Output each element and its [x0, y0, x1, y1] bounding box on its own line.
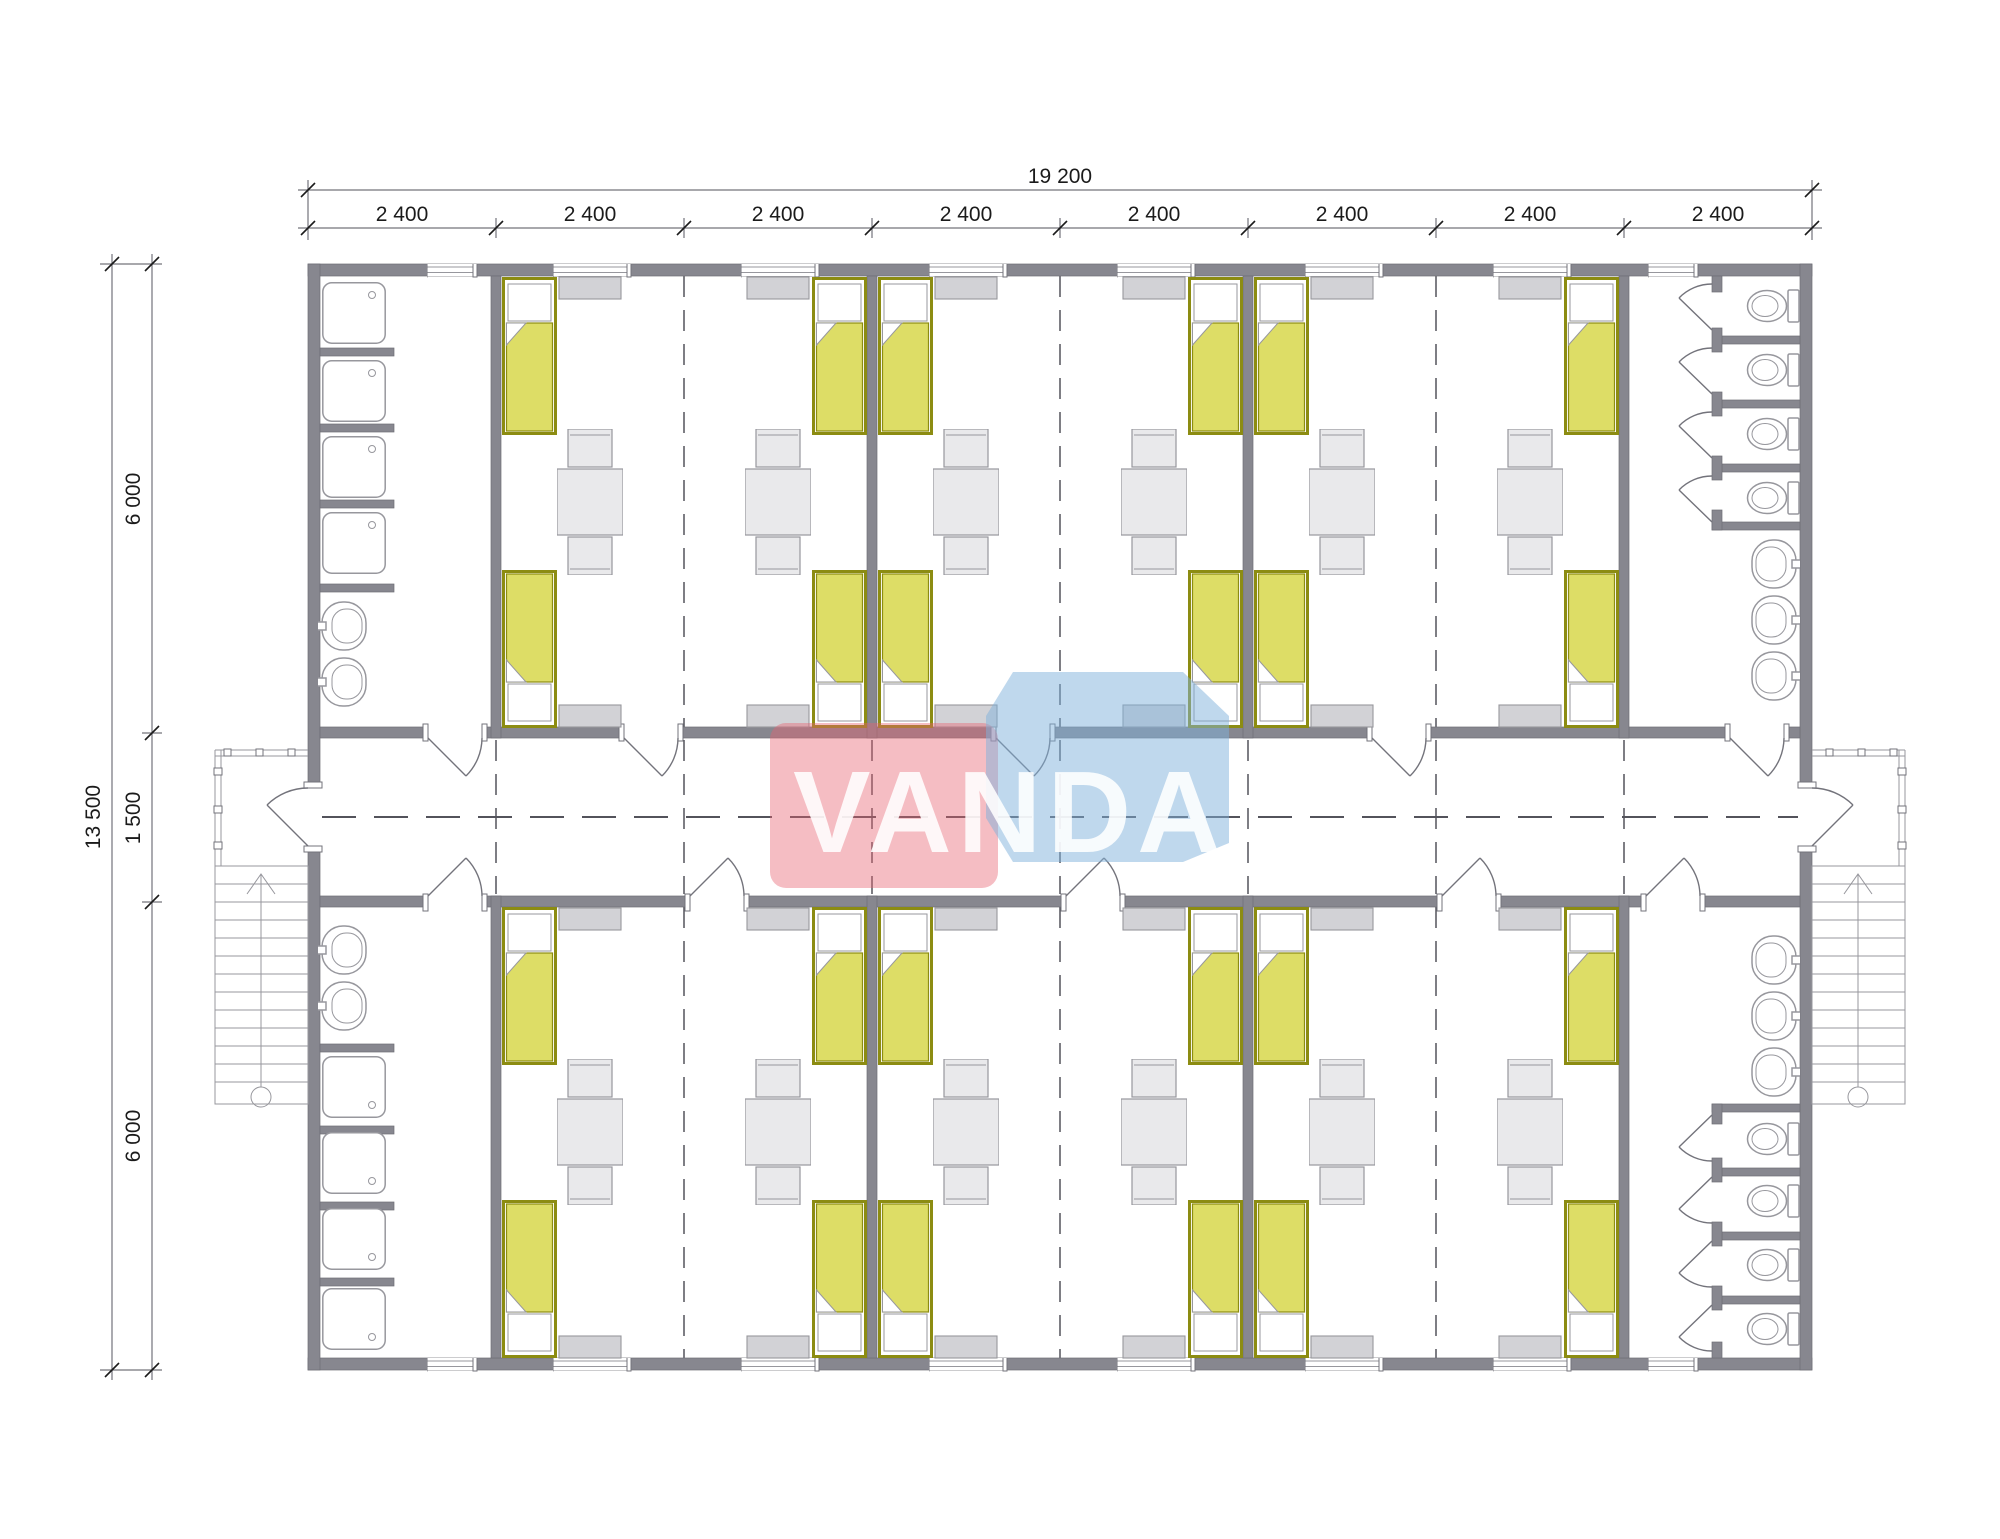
- table-set: [1497, 429, 1563, 575]
- window: [737, 1357, 819, 1371]
- floor-plan-page: 19 200 2 400 2 400 2 400 2 400 2 400 2 4…: [0, 0, 2000, 1539]
- dim-module-8: 2 400: [1692, 203, 1745, 226]
- stall-door: [1679, 1177, 1712, 1223]
- side-unit: [935, 1336, 997, 1358]
- toilet: [1748, 1185, 1800, 1217]
- table-set: [1309, 429, 1375, 575]
- toilet: [1748, 1123, 1800, 1155]
- window: [549, 263, 631, 277]
- door-washroom-lower-right: [1641, 858, 1705, 911]
- exterior-wall-top: [308, 264, 1812, 276]
- table-set: [745, 429, 811, 575]
- corridor-wall-lower: [320, 896, 1800, 907]
- stair-direction-arrow: [247, 874, 275, 1087]
- dim-module-7: 2 400: [1504, 203, 1557, 226]
- toilet: [1748, 1313, 1800, 1345]
- exterior-wall-left-lower: [308, 846, 320, 1370]
- bed: [814, 572, 866, 727]
- exterior-wall-bottom: [308, 1358, 1812, 1370]
- window: [1644, 263, 1698, 277]
- sink: [316, 658, 366, 706]
- window: [423, 1357, 477, 1371]
- shower-tray: [323, 1057, 385, 1117]
- side-unit: [747, 1336, 809, 1358]
- window: [423, 263, 477, 277]
- table-set: [1121, 429, 1187, 575]
- toilet: [1748, 418, 1800, 450]
- porch-right: [1812, 749, 1906, 866]
- stall-door: [1679, 1305, 1712, 1351]
- side-unit: [1499, 1336, 1561, 1358]
- table-set: [933, 1059, 999, 1205]
- window: [1113, 1357, 1195, 1371]
- table-set: [745, 1059, 811, 1205]
- side-unit: [1123, 908, 1185, 930]
- toilet: [1748, 1249, 1800, 1281]
- sink: [1752, 652, 1802, 700]
- dim-band-upper: 6 000: [122, 473, 145, 526]
- dim-overall-depth: 13 500: [82, 785, 105, 849]
- dim-module-1: 2 400: [376, 203, 429, 226]
- bed: [504, 279, 556, 434]
- dim-band-lower: 6 000: [122, 1110, 145, 1163]
- window: [1644, 1357, 1698, 1371]
- dim-overall-width: 19 200: [1028, 165, 1092, 188]
- side-unit: [747, 908, 809, 930]
- stall-door: [1679, 348, 1712, 394]
- bed: [1566, 909, 1618, 1064]
- window: [925, 1357, 1007, 1371]
- door-washroom-upper-left: [423, 724, 487, 776]
- exterior-wall-right-upper: [1800, 264, 1812, 788]
- washroom-upper-right: [1679, 276, 1802, 700]
- table-set: [933, 429, 999, 575]
- exterior-wall-right-lower: [1800, 846, 1812, 1370]
- stall-door: [1679, 1241, 1712, 1287]
- bed: [814, 1202, 866, 1357]
- dim-module-4: 2 400: [940, 203, 993, 226]
- window: [549, 1357, 631, 1371]
- shower-tray: [323, 513, 385, 573]
- side-unit: [747, 277, 809, 299]
- dim-module-2: 2 400: [564, 203, 617, 226]
- toilet: [1748, 482, 1800, 514]
- dim-corridor: 1 500: [122, 792, 145, 845]
- side-unit: [559, 1336, 621, 1358]
- door-room-lower-1: [685, 858, 749, 911]
- washroom-upper-left: [316, 283, 394, 706]
- sink: [1752, 540, 1802, 588]
- dim-module-3: 2 400: [752, 203, 805, 226]
- bed: [1256, 279, 1308, 434]
- dimension-ticks-top: [301, 180, 1819, 240]
- door-washroom-lower-left: [423, 858, 487, 911]
- bed: [814, 279, 866, 434]
- side-unit: [1311, 705, 1373, 727]
- door-room-upper-3: [1367, 724, 1431, 776]
- sink: [316, 926, 366, 974]
- side-unit: [1499, 277, 1561, 299]
- bed: [880, 1202, 932, 1357]
- table-set: [1309, 1059, 1375, 1205]
- shower-tray: [323, 1289, 385, 1349]
- side-unit: [1311, 908, 1373, 930]
- shower-tray: [323, 1209, 385, 1269]
- porch-left: [214, 749, 308, 866]
- table-set: [1121, 1059, 1187, 1205]
- sink: [316, 982, 366, 1030]
- table-set: [1497, 1059, 1563, 1205]
- dimension-annotations-left: 13 500 6 000 1 500 6 000: [82, 254, 162, 1380]
- bed: [1566, 279, 1618, 434]
- side-unit: [559, 705, 621, 727]
- window: [737, 263, 819, 277]
- window: [1489, 263, 1571, 277]
- dimension-annotations-top: 19 200 2 400 2 400 2 400 2 400 2 400 2 4…: [298, 165, 1822, 240]
- stair-direction-arrow: [1844, 874, 1872, 1087]
- entrance-left: [214, 749, 322, 1107]
- bed: [1190, 279, 1242, 434]
- bed: [1256, 909, 1308, 1064]
- stall-door: [1679, 1115, 1712, 1161]
- side-unit: [935, 277, 997, 299]
- shower-tray: [323, 283, 385, 343]
- bed: [880, 279, 932, 434]
- dim-module-6: 2 400: [1316, 203, 1369, 226]
- side-unit: [1123, 277, 1185, 299]
- bed: [814, 909, 866, 1064]
- bed: [880, 572, 932, 727]
- stall-door: [1679, 412, 1712, 458]
- side-unit: [1311, 277, 1373, 299]
- bed: [1566, 1202, 1618, 1357]
- side-unit: [1499, 705, 1561, 727]
- bed: [504, 572, 556, 727]
- door-room-upper-1: [619, 724, 683, 776]
- bed: [880, 909, 932, 1064]
- bed: [1190, 1202, 1242, 1357]
- stairs-left: [215, 866, 308, 1107]
- bed: [1256, 1202, 1308, 1357]
- bed: [504, 909, 556, 1064]
- sink: [1752, 596, 1802, 644]
- table-set: [557, 429, 623, 575]
- bed: [1566, 572, 1618, 727]
- stall-door: [1679, 476, 1712, 522]
- exterior-wall-left-upper: [308, 264, 320, 788]
- bed: [1190, 909, 1242, 1064]
- washroom-lower-right: [1679, 936, 1802, 1358]
- sink: [316, 602, 366, 650]
- stairs-right: [1812, 866, 1905, 1107]
- bed: [1256, 572, 1308, 727]
- shower-tray: [323, 437, 385, 497]
- toilet: [1748, 290, 1800, 322]
- entrance-door-left: [267, 788, 308, 846]
- toilet: [1748, 354, 1800, 386]
- side-unit: [1311, 1336, 1373, 1358]
- door-room-lower-3: [1437, 858, 1501, 911]
- window: [1301, 263, 1383, 277]
- window: [1301, 1357, 1383, 1371]
- floor-plan-svg: 19 200 2 400 2 400 2 400 2 400 2 400 2 4…: [0, 0, 2000, 1539]
- washroom-lower-left: [316, 926, 394, 1349]
- door-washroom-upper-right: [1725, 724, 1789, 776]
- sink: [1752, 1048, 1802, 1096]
- sink: [1752, 936, 1802, 984]
- watermark-text: VANDA: [793, 747, 1227, 877]
- dim-module-5: 2 400: [1128, 203, 1181, 226]
- table-set: [557, 1059, 623, 1205]
- stall-door: [1679, 284, 1712, 330]
- shower-tray: [323, 361, 385, 421]
- entrance-door-right: [1812, 788, 1853, 846]
- bed: [504, 1202, 556, 1357]
- window: [1113, 263, 1195, 277]
- side-unit: [559, 908, 621, 930]
- side-unit: [1123, 1336, 1185, 1358]
- side-unit: [559, 277, 621, 299]
- entrance-right: [1798, 749, 1906, 1107]
- window: [925, 263, 1007, 277]
- side-unit: [1499, 908, 1561, 930]
- sink: [1752, 992, 1802, 1040]
- shower-tray: [323, 1133, 385, 1193]
- side-unit: [935, 908, 997, 930]
- window: [1489, 1357, 1571, 1371]
